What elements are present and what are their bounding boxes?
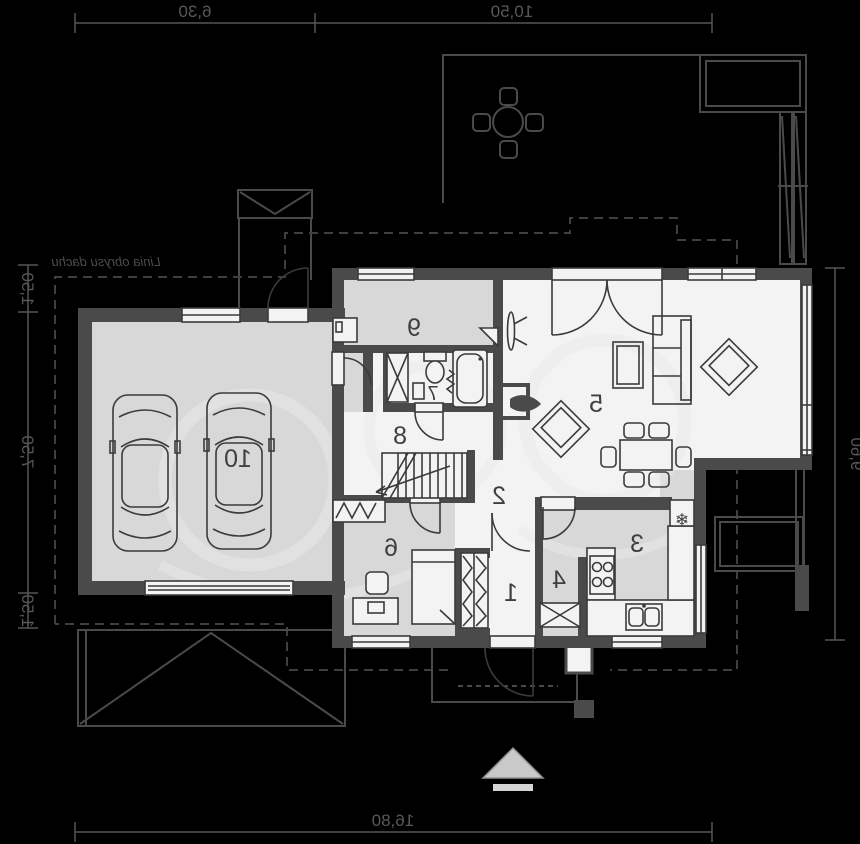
entrance-arrow-icon: [483, 748, 543, 778]
room-label-3: 3: [630, 530, 644, 558]
dim-left-c: 1,50: [18, 594, 37, 627]
garden-chair: [500, 141, 517, 158]
garden-chair: [500, 88, 517, 105]
fridge-snowflake-icon: ❄: [675, 510, 689, 529]
garden-chair: [473, 114, 490, 131]
entrance-arrow-base: [493, 784, 533, 791]
porch-post: [574, 700, 594, 718]
garage-corridor-floor: [344, 345, 363, 412]
side-canopy: [238, 190, 312, 308]
room-label-5: 5: [589, 390, 603, 418]
room9-fixtures: [333, 318, 357, 342]
roof-outline-label: Linia obrysu dachu: [51, 254, 160, 269]
driveway: [78, 630, 345, 726]
garden-table: [493, 107, 523, 137]
window: [358, 268, 414, 280]
window: [352, 636, 410, 648]
terrace-planter-top: [700, 55, 806, 112]
desk-chair: [366, 572, 388, 594]
window: [696, 545, 706, 633]
toilet: [424, 352, 446, 361]
garage-window: [182, 308, 240, 322]
dim-top-a: 6,30: [178, 2, 211, 21]
room-label-2: 2: [492, 482, 506, 510]
dim-right-total: 9,60: [847, 437, 860, 470]
entrance-porch: [432, 645, 594, 718]
entrance-arrow: [483, 748, 543, 791]
terrace-planter-side: [715, 517, 803, 571]
stairs: [376, 453, 467, 498]
room-label-10: 10: [224, 445, 252, 473]
room4-fixtures: [540, 603, 580, 627]
window: [612, 636, 662, 648]
room-label-7: 7: [427, 383, 438, 405]
window: [688, 268, 756, 280]
garage-floor: [92, 322, 332, 581]
room-label-8: 8: [393, 422, 407, 450]
counter: [668, 526, 694, 600]
porch-post: [566, 645, 592, 673]
hall-closet: [461, 553, 488, 628]
dim-top-b: 10,50: [491, 2, 534, 21]
garden-chair: [526, 114, 543, 131]
room-label-1: 1: [504, 579, 518, 607]
washbasin: [413, 383, 424, 399]
dim-left-a: 1,50: [18, 272, 37, 305]
tv: [508, 312, 515, 350]
terrace-lower: [715, 470, 809, 611]
garage-door: [145, 581, 293, 595]
dim-bottom-total: 16,80: [372, 811, 415, 830]
bed: [412, 550, 455, 624]
dim-left-b: 7,50: [18, 435, 37, 468]
floor-plan-page: ❄: [0, 0, 860, 844]
window: [802, 285, 812, 455]
room-label-6: 6: [384, 534, 398, 562]
stove: [590, 556, 614, 594]
garden-table-set: [473, 88, 543, 158]
room-label-9: 9: [407, 314, 421, 342]
garage-side-door: [268, 268, 308, 322]
entrance-door: [485, 636, 535, 696]
floor-plan-drawing: ❄: [0, 0, 860, 844]
dining-table: [620, 440, 672, 470]
room-label-4: 4: [552, 566, 566, 594]
